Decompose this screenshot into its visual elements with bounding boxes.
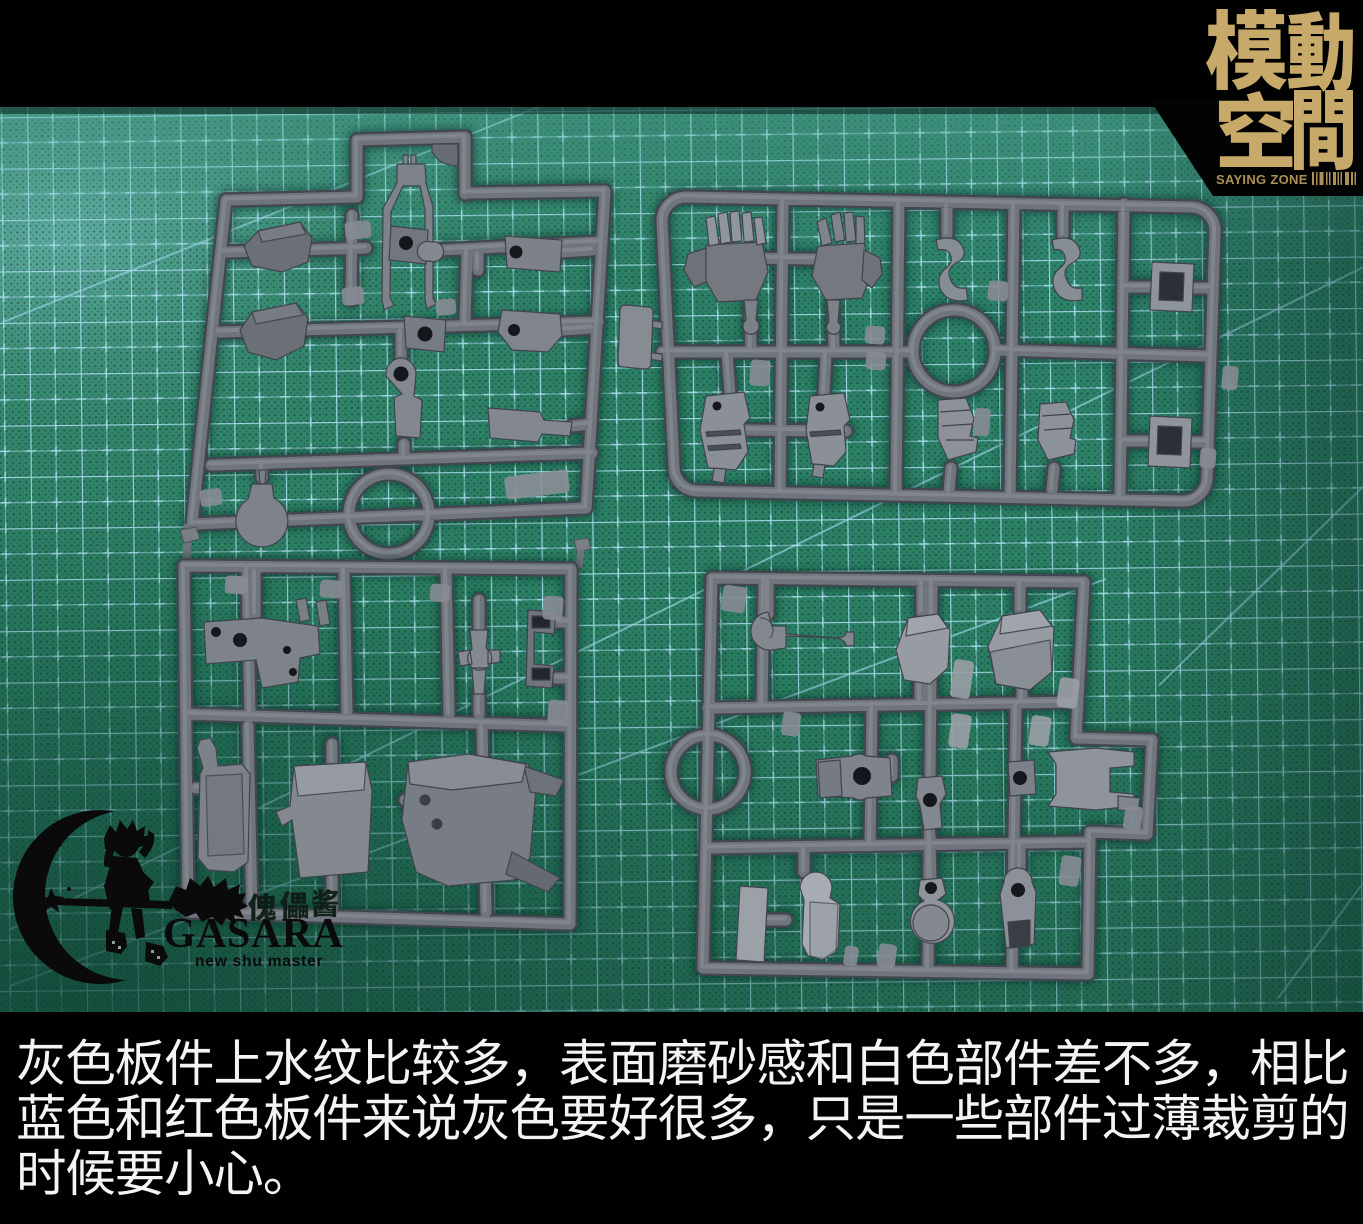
svg-text:SAYING ZONE: SAYING ZONE [1216,172,1308,187]
svg-text:new shu master: new shu master [195,953,323,970]
